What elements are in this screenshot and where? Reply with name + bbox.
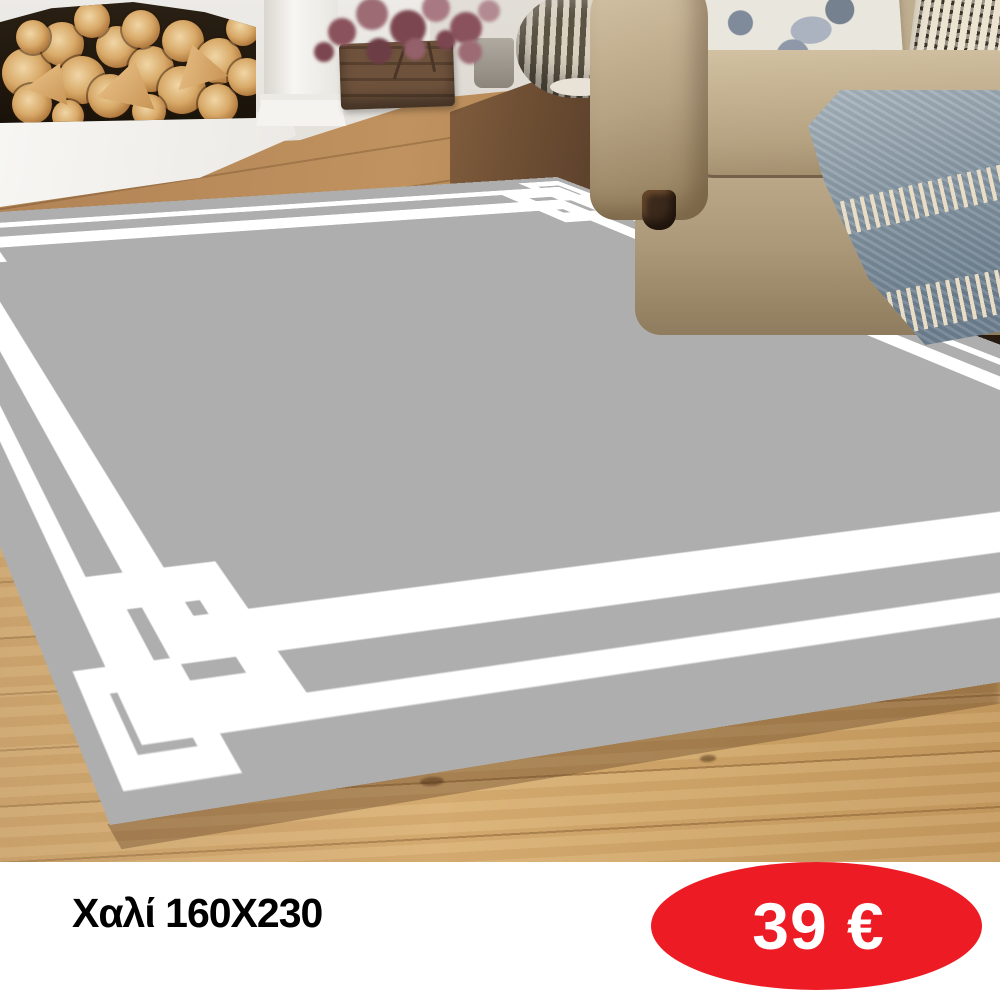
product-card: Χαλί 160X230 39 €	[0, 0, 1000, 1000]
caption-bar: Χαλί 160X230 39 €	[0, 862, 1000, 1000]
plant-flowers	[310, 0, 500, 84]
price-badge: 39 €	[651, 862, 982, 990]
firewood-stack	[0, 2, 256, 128]
flower-blob	[356, 0, 388, 30]
log-end	[74, 2, 110, 38]
sofa-arm	[590, 0, 708, 220]
log-end	[198, 84, 238, 124]
flower-blob	[328, 18, 356, 46]
flower-blob	[314, 42, 334, 62]
product-image	[0, 0, 1000, 862]
floor-knot	[700, 754, 716, 762]
flower-blob	[422, 0, 450, 22]
flower-blob	[366, 38, 392, 64]
product-title: Χαλί 160X230	[72, 890, 322, 937]
plant-stem	[427, 42, 436, 72]
price-label: 39 €	[748, 888, 884, 964]
flower-blob	[458, 40, 482, 64]
flower-blob	[404, 38, 426, 60]
sofa-foot	[642, 190, 676, 230]
log-end	[16, 20, 50, 54]
flower-blob	[436, 30, 456, 50]
flower-blob	[478, 0, 500, 22]
fireplace-column-base	[256, 100, 346, 126]
sofa	[580, 0, 1000, 360]
log-end	[122, 10, 160, 48]
